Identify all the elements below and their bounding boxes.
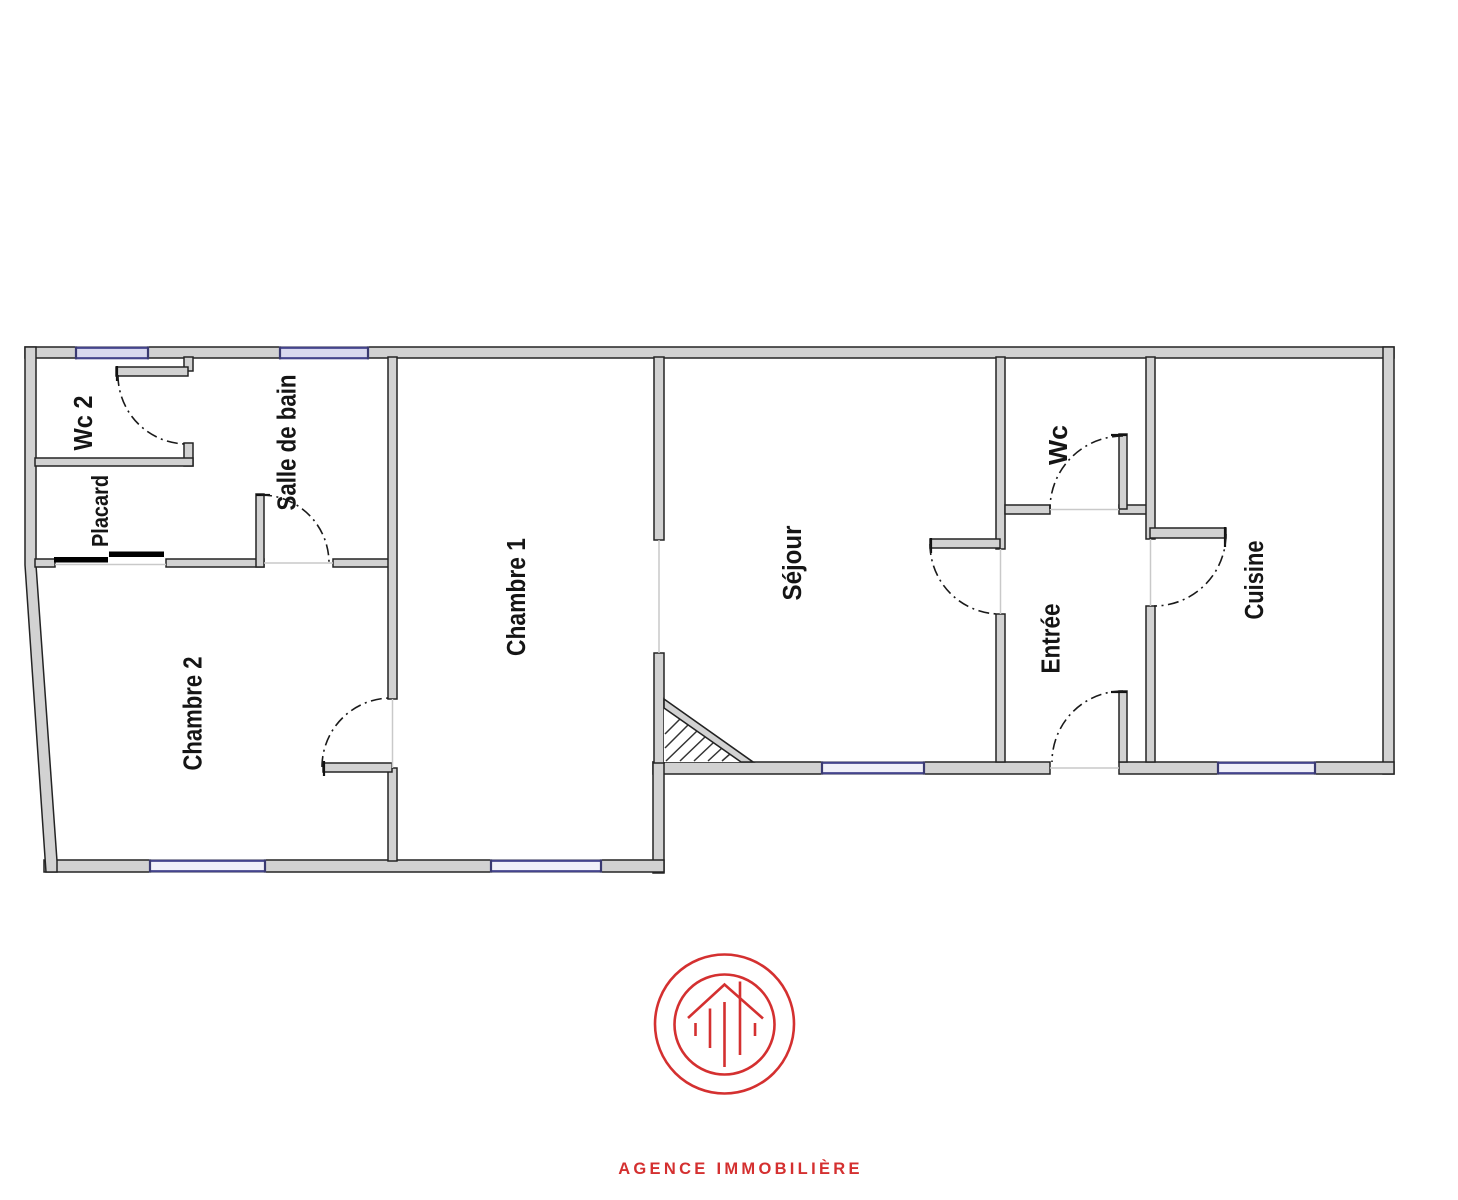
svg-text:Séjour: Séjour (779, 525, 807, 600)
svg-text:Chambre 1: Chambre 1 (503, 538, 531, 656)
svg-text:Wc 2: Wc 2 (70, 396, 98, 451)
svg-text:Entrée: Entrée (1038, 604, 1066, 674)
svg-text:Wc: Wc (1045, 425, 1073, 465)
svg-text:AGENCE IMMOBILIÈRE: AGENCE IMMOBILIÈRE (618, 1159, 863, 1178)
svg-text:Placard: Placard (87, 475, 113, 547)
svg-text:Salle de bain: Salle de bain (274, 375, 302, 511)
svg-text:Cuisine: Cuisine (1241, 541, 1269, 620)
svg-text:Chambre 2: Chambre 2 (180, 657, 208, 771)
